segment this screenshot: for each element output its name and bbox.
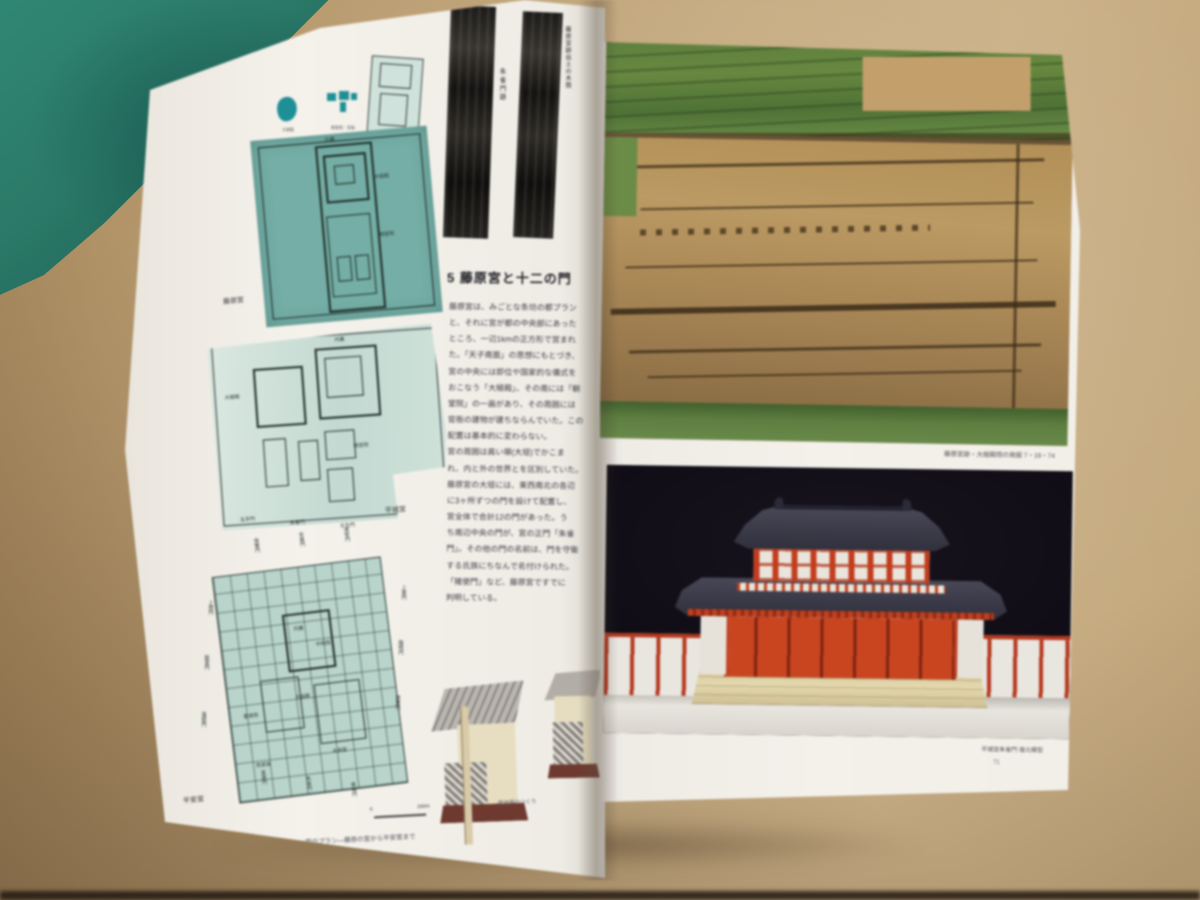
- trench-line: [626, 259, 1038, 268]
- wall-drawing-large: [429, 664, 535, 847]
- gate-label: 朱雀門: [290, 520, 305, 527]
- gate-label: 上西門: [207, 600, 213, 615]
- legend-label: 朝堂院・官衙: [317, 125, 369, 131]
- trench-line: [647, 370, 1021, 379]
- gate-label: 達智門: [342, 527, 349, 543]
- gate-label: 藻壁門: [200, 712, 206, 727]
- gate-label: 陽明門: [397, 640, 403, 655]
- gate-label: 玉手門: [240, 517, 255, 524]
- teal-glyph-icon: [327, 91, 357, 119]
- map-heian: 内裏 大極殿 豊楽院 中和院 太政官 民部省: [212, 556, 409, 803]
- hall-rect: [297, 439, 320, 481]
- block-rect: [314, 679, 367, 745]
- photo-caption-bottom: 平城宮朱雀門 復元模型: [603, 739, 1043, 754]
- gate-label: 皇嘉門: [259, 770, 266, 785]
- map-fujiwara: 内裏 大極殿 朝堂院: [250, 126, 443, 328]
- trench-line-thick: [611, 301, 1056, 315]
- gate-label: 朱雀門: [304, 776, 311, 791]
- map-caption-fujiwara: 藤原宮: [223, 295, 245, 307]
- shibi-finial-left: [774, 497, 783, 509]
- hall-rect: [327, 468, 354, 502]
- gate-label: 上東門: [400, 585, 406, 600]
- scale-label: 200m: [417, 804, 430, 810]
- ground-wall-left: [700, 612, 730, 674]
- shibi-finial-right: [902, 499, 911, 511]
- scale-bar: 0 200m: [370, 804, 431, 821]
- hall-rect: [262, 438, 288, 488]
- photo-caption-top: 藤原宮跡・大極殿院の発掘 7・19・74: [603, 442, 1055, 460]
- gate-model-photo: [603, 465, 1073, 739]
- legend-label: 大極殿: [265, 127, 311, 133]
- map-label: 民部省: [256, 762, 272, 769]
- gate-label: 偉鑒門: [252, 538, 259, 554]
- glyph-square: [339, 91, 349, 100]
- map-label: 内裏: [334, 337, 344, 343]
- hall-rect: [325, 429, 357, 460]
- hall-rect: [354, 255, 370, 281]
- map-heijo: 内裏 大極殿 朝堂院: [207, 323, 452, 531]
- strip-caption: 朱雀門跡: [496, 68, 506, 102]
- bw-photo-strip: [513, 11, 563, 239]
- right-page: 藤原宮跡・大極殿院の発掘 7・19・74: [595, 0, 1090, 860]
- gate-label: 安嘉門: [297, 532, 304, 548]
- excavation-aerial-photo: [599, 26, 1074, 446]
- compound-west: [253, 365, 307, 428]
- left-page: 大極殿 朝堂院・官衙 宮城(大内裏): [55, 0, 605, 885]
- glyph-square: [327, 93, 336, 101]
- strip-caption: 藤原宮跡出土の木簡: [563, 26, 572, 89]
- trench-vertical: [1012, 144, 1020, 408]
- glyph-tail: [340, 102, 346, 112]
- open-book: 大極殿 朝堂院・官衙 宮城(大内裏): [0, 0, 1200, 900]
- teal-blob-icon: [275, 95, 300, 123]
- block-rect: [259, 677, 304, 733]
- glyph-square: [351, 93, 357, 100]
- thumb-rect: [378, 93, 408, 127]
- map-label: 豊楽院: [243, 714, 259, 721]
- gate-label: 殷富門: [203, 655, 209, 670]
- map-caption-heian: 平安宮: [183, 794, 205, 806]
- scale-zero: 0: [370, 807, 373, 813]
- ground-wall-right: [954, 616, 984, 678]
- map-label: 太政官: [332, 748, 348, 755]
- map-label: 内裏: [325, 137, 335, 143]
- hall-rect: [337, 256, 353, 282]
- thumb-rect: [379, 63, 413, 89]
- scale-line: [374, 814, 426, 818]
- gate-label: 待賢門: [394, 695, 400, 710]
- page-number: 71: [993, 760, 1000, 766]
- gate-label: 美福門: [349, 782, 356, 797]
- trench-line: [623, 159, 1044, 169]
- upper-roof: [734, 503, 951, 552]
- field-green-bottom: [599, 401, 1068, 446]
- chodoin-block: [326, 213, 377, 297]
- inner-rect: [324, 355, 364, 398]
- trench-line: [629, 343, 1041, 353]
- map-caption-heijo: 平城宮: [385, 504, 407, 515]
- posthole-row: [640, 225, 930, 236]
- trench-line: [641, 201, 1034, 210]
- map-label: 朝堂院: [353, 443, 368, 450]
- map-label: 大極殿: [295, 694, 311, 701]
- field-light-patch: [863, 57, 1031, 111]
- photo-bottom-edge: [0, 891, 1200, 900]
- dig-area: [600, 137, 1073, 409]
- ridge-beam: [777, 503, 907, 511]
- book-photo-scene: 大極殿 朝堂院・官衙 宮城(大内裏): [0, 0, 1200, 900]
- book-gutter-shadow: [578, 0, 618, 880]
- hall-rect: [334, 164, 355, 184]
- bw-photo-strip: [443, 5, 496, 238]
- map-label: 大極殿: [224, 395, 239, 402]
